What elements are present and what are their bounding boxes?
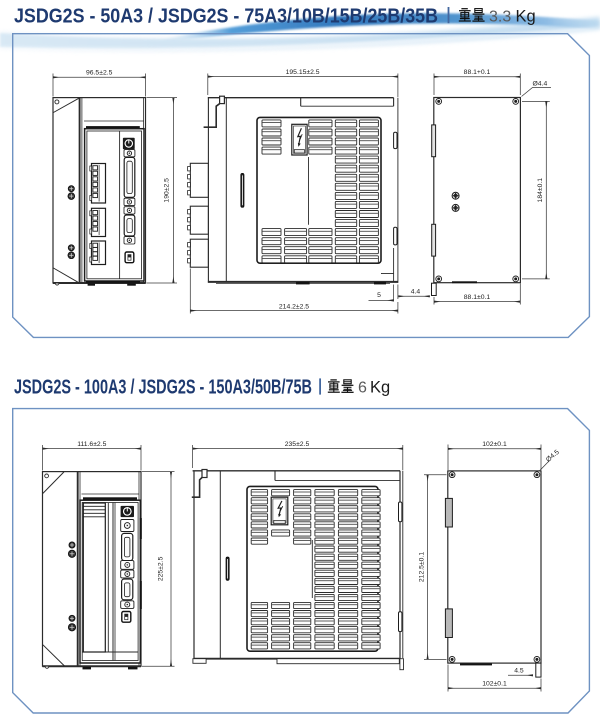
- svg-text:4.5: 4.5: [514, 668, 524, 675]
- svg-text:195.15±2.5: 195.15±2.5: [286, 69, 320, 76]
- svg-text:96.5±2.5: 96.5±2.5: [86, 70, 113, 77]
- svg-text:111.6±2.5: 111.6±2.5: [77, 441, 106, 448]
- svg-text:JSDG2S - 100A3 / JSDG2S - 150A: JSDG2S - 100A3 / JSDG2S - 150A3/50B/75B: [14, 376, 312, 398]
- svg-text:4.4: 4.4: [411, 289, 421, 296]
- svg-text:JSDG2S - 50A3 / JSDG2S - 75A3/: JSDG2S - 50A3 / JSDG2S - 75A3/10B/15B/25…: [14, 5, 438, 27]
- svg-text:184±0.1: 184±0.1: [537, 178, 544, 203]
- svg-text:3.3: 3.3: [489, 9, 511, 26]
- svg-text:Kg: Kg: [516, 8, 536, 26]
- svg-text:190±2.5: 190±2.5: [164, 178, 171, 203]
- svg-text:Ø4.4: Ø4.4: [533, 81, 548, 88]
- svg-text:Kg: Kg: [370, 379, 390, 397]
- svg-text:235±2.5: 235±2.5: [285, 441, 310, 448]
- svg-text:6: 6: [358, 380, 367, 397]
- svg-text:102±0.1: 102±0.1: [482, 441, 507, 448]
- svg-text:214.2±2.5: 214.2±2.5: [279, 303, 309, 310]
- svg-text:88.1±0.1: 88.1±0.1: [464, 294, 491, 301]
- svg-text:5: 5: [377, 292, 381, 299]
- svg-text:225±2.5: 225±2.5: [157, 556, 164, 581]
- svg-text:88.1+0.1: 88.1+0.1: [464, 69, 491, 76]
- svg-text:212.5±0.1: 212.5±0.1: [419, 552, 426, 582]
- svg-text:102±0.1: 102±0.1: [482, 681, 507, 688]
